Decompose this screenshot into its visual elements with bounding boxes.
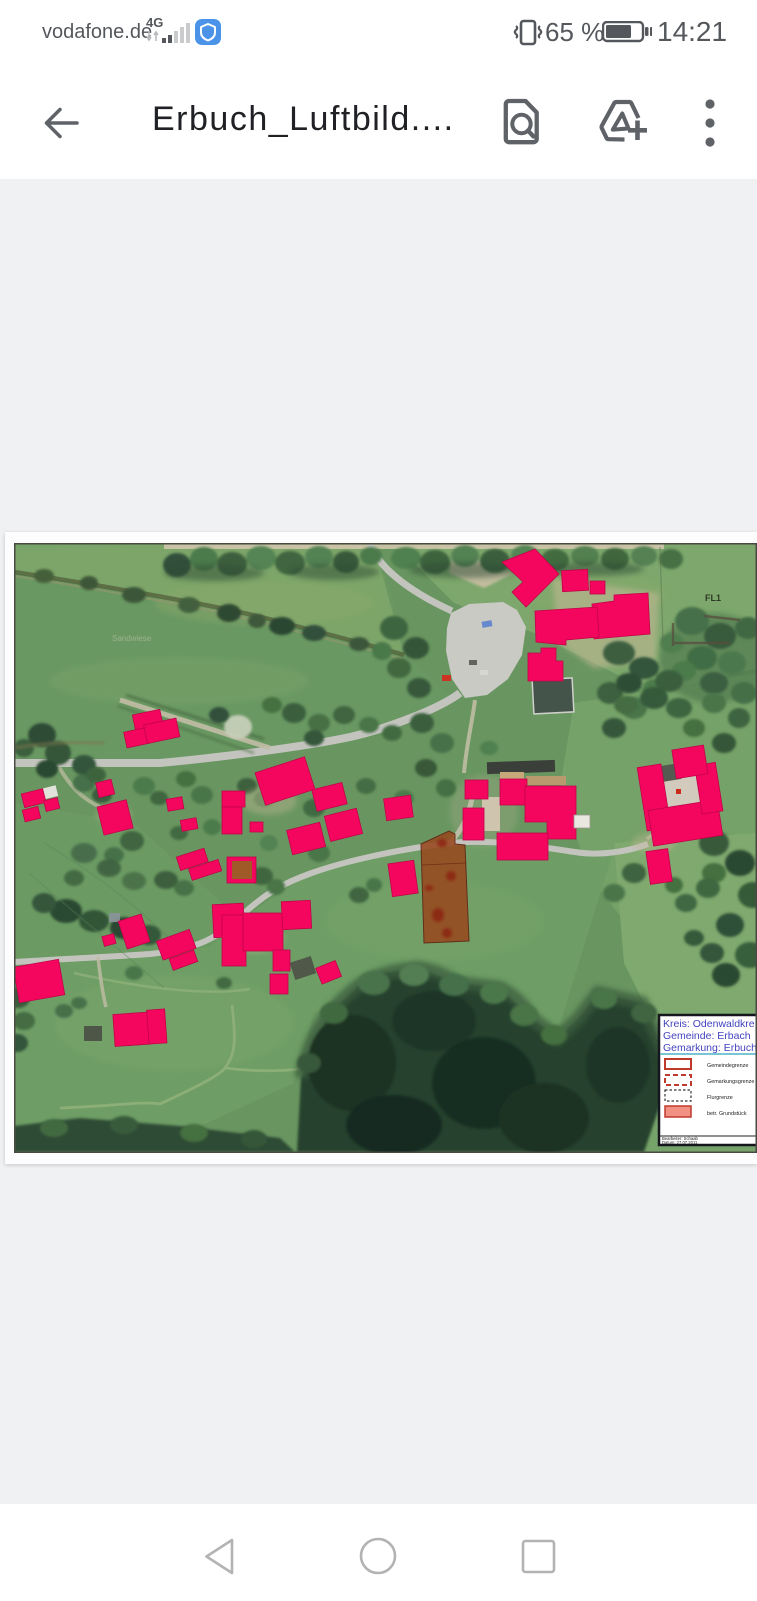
svg-text:Gemeindegrenze: Gemeindegrenze [707,1063,748,1069]
svg-text:Kreis: Odenwaldkre: Kreis: Odenwaldkre [663,1018,755,1030]
svg-text:betr. Grundstück: betr. Grundstück [707,1111,747,1117]
svg-text:Gemarkungsgrenze: Gemarkungsgrenze [707,1079,754,1085]
svg-text:Gemarkung: Erbuch: Gemarkung: Erbuch [663,1042,757,1054]
svg-text:Sandwiese: Sandwiese [112,634,152,643]
svg-text:Datum: 27.07.2011: Datum: 27.07.2011 [662,1140,698,1145]
svg-text:FL1: FL1 [705,593,721,603]
svg-text:Gemeinde: Erbach: Gemeinde: Erbach [663,1030,751,1042]
svg-text:Flurgrenze: Flurgrenze [707,1095,733,1101]
